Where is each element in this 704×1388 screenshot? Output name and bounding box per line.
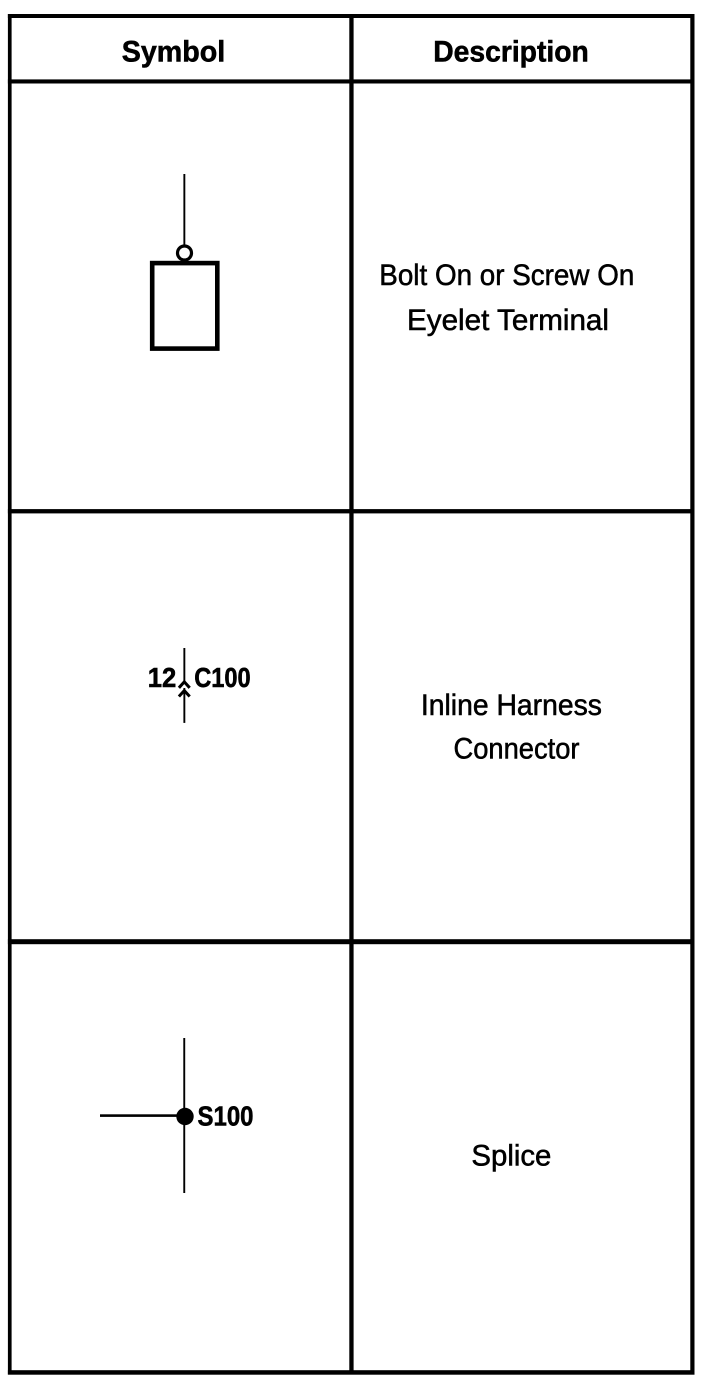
svg-text:Symbol: Symbol: [122, 36, 226, 69]
svg-text:12: 12: [148, 662, 177, 693]
svg-text:Inline Harness: Inline Harness: [421, 689, 602, 722]
svg-text:Description: Description: [433, 36, 589, 69]
svg-text:Splice: Splice: [471, 1139, 551, 1172]
svg-text:Eyelet Terminal: Eyelet Terminal: [407, 304, 609, 337]
svg-text:C100: C100: [194, 662, 251, 693]
svg-text:Connector: Connector: [454, 733, 580, 766]
svg-text:Bolt On or Screw On: Bolt On or Screw On: [379, 259, 634, 292]
svg-text:S100: S100: [198, 1101, 254, 1132]
